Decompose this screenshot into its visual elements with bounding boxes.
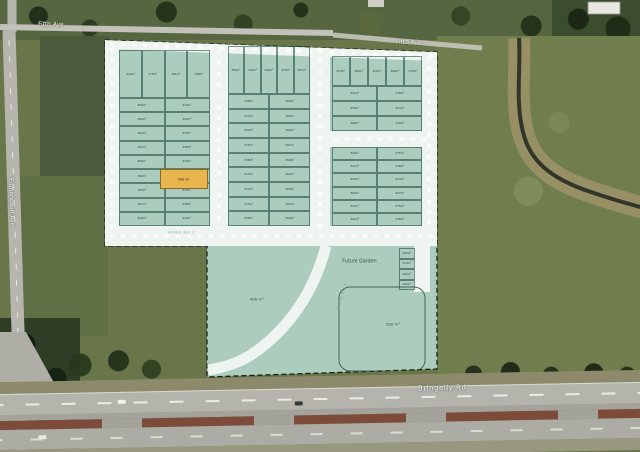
lot-row: 322m²	[399, 280, 415, 291]
lot-area: 360m²	[350, 122, 359, 125]
lot-row: 450m²413m²	[332, 173, 422, 186]
lot-area: 300m²	[137, 132, 146, 135]
lot-area: 450m²	[350, 107, 359, 110]
lot-area: 338m²	[395, 92, 404, 95]
lot-area: 301m²	[350, 92, 359, 95]
lot[interactable]: 450m²	[399, 248, 415, 259]
lot[interactable]: 301m²	[332, 86, 377, 101]
lot[interactable]: 301m²	[165, 50, 188, 98]
lot[interactable]: 322m²	[228, 123, 269, 138]
lot-area: 300m²	[285, 188, 294, 191]
lot[interactable]: 375m²	[142, 50, 165, 98]
lot-area: 375m²	[183, 132, 192, 135]
lot-area: 322m²	[403, 283, 412, 286]
lot[interactable]: 301m²	[269, 197, 310, 212]
lot[interactable]: 338m²	[377, 213, 422, 226]
lot[interactable]: 322m²	[399, 280, 415, 291]
lot-area: 375m²	[183, 189, 192, 192]
lot-row: 450m²413m²	[119, 155, 210, 169]
lot-rows: 450m²413m²360m²322m²	[399, 248, 415, 290]
lot-area: 360m²	[285, 173, 294, 176]
lot-area: 301m²	[285, 202, 294, 205]
lot-row: 450m²	[399, 248, 415, 259]
lot-row: 322m²300m²	[228, 123, 310, 138]
lot-row: 360m²322m²	[332, 116, 422, 131]
lot[interactable]: 450m²	[269, 211, 310, 226]
lot-rows: 300m²375m²301m²338m²450m²413m²360m²322m²…	[332, 147, 422, 226]
lot[interactable]: 360m²	[269, 167, 310, 182]
lot[interactable]: 450m²	[119, 155, 165, 169]
lot-area: 375m²	[149, 72, 158, 75]
lot-area: 413m²	[183, 217, 192, 220]
lot[interactable]: 301m²	[332, 213, 377, 226]
lot-area: 301m²	[137, 146, 146, 149]
lot-area: 375m²	[409, 69, 418, 72]
lot-top-row: 413m²360m²322m²300m²375m²	[332, 56, 422, 86]
lot-area: 413m²	[403, 262, 412, 265]
lot-area: 322m²	[248, 68, 257, 71]
lot[interactable]: 360m²	[332, 116, 377, 131]
lot-area: 413m²	[183, 104, 192, 107]
lot-block-block-d: 450m²413m²360m²322m²	[399, 248, 415, 290]
lot[interactable]: 450m²	[332, 173, 377, 186]
lot-row: 300m²375m²	[332, 200, 422, 213]
lot[interactable]: 450m²	[332, 101, 377, 116]
lot[interactable]: 300m²	[269, 123, 310, 138]
lot-row: 338m²450m²	[228, 94, 310, 109]
lot[interactable]: 360m²	[332, 187, 377, 200]
lot[interactable]: 301m²	[294, 46, 310, 94]
lot-row: 301m²338m²	[119, 198, 210, 212]
lot[interactable]: 450m²	[269, 94, 310, 109]
lot[interactable]: 301m²	[119, 198, 165, 212]
lot[interactable]: 360m²	[119, 112, 165, 126]
lot-area: 322m²	[373, 69, 382, 72]
lot[interactable]: 300m²	[269, 182, 310, 197]
lot-area: 360m²	[350, 192, 359, 195]
lot-row: 301m²338m²	[332, 160, 422, 173]
lot[interactable]: 338m²	[228, 211, 269, 226]
lot-area: 450m²	[285, 217, 294, 220]
lot-area: 301m²	[297, 68, 306, 71]
lot[interactable]: 360m²	[119, 169, 165, 183]
lot-area: 413m²	[244, 114, 253, 117]
lot-row: 413m²360m²	[228, 109, 310, 124]
lot[interactable]: 301m²	[332, 160, 377, 173]
lot-area: 338m²	[395, 218, 404, 221]
lot[interactable]: 413m²	[165, 155, 211, 169]
lot[interactable]: 338m²	[377, 160, 422, 173]
lot-area: 300m²	[391, 69, 400, 72]
lot[interactable]: 338m²	[377, 86, 422, 101]
lot[interactable]: 301m²	[119, 141, 165, 155]
lot-block-block-c2: 300m²375m²301m²338m²450m²413m²360m²322m²…	[332, 147, 422, 226]
lot-area: 338m²	[244, 217, 253, 220]
lot-row: 450m²413m²	[119, 98, 210, 112]
lot[interactable]: 301m²	[269, 138, 310, 153]
lot[interactable]: 300m²	[332, 147, 377, 160]
lot-area: 375m²	[244, 202, 253, 205]
bringelly-rd-label: Bringelly Rd	[418, 383, 467, 392]
lot-top-row: 360m²322m²300m²375m²301m²	[228, 46, 310, 94]
parcel-left-area-label: 400 m²	[250, 297, 264, 302]
lot-row: 301m²338m²	[332, 86, 422, 101]
lot-area: 375m²	[395, 152, 404, 155]
highlighted-lot[interactable]: 300 m²	[160, 169, 208, 189]
lot[interactable]: 413m²	[165, 98, 211, 112]
lot-row: 413m²360m²	[228, 167, 310, 182]
lot[interactable]: 338m²	[228, 153, 269, 168]
lot[interactable]: 375m²	[377, 200, 422, 213]
lot-area: 338m²	[183, 146, 192, 149]
future-garden-label: Future Garden	[342, 259, 376, 265]
lot-area: 322m²	[244, 129, 253, 132]
lot[interactable]: 450m²	[119, 98, 165, 112]
lot-area: 338m²	[244, 158, 253, 161]
lot-area: 300m²	[265, 68, 274, 71]
lot-area: 301m²	[350, 218, 359, 221]
lot-area: 301m²	[137, 203, 146, 206]
lot-area: 413m²	[244, 173, 253, 176]
lot[interactable]: 300m²	[119, 50, 142, 98]
lot-area: 301m²	[350, 165, 359, 168]
lot-top-row: 300m²375m²301m²338m²	[119, 50, 210, 98]
lot-area: 338m²	[395, 165, 404, 168]
lot-area: 322m²	[395, 192, 404, 195]
lot-area: 322m²	[395, 122, 404, 125]
lot-area: 322m²	[183, 118, 192, 121]
lot-area: 360m²	[285, 114, 294, 117]
lot[interactable]: 360m²	[269, 109, 310, 124]
lot-area: 375m²	[395, 205, 404, 208]
lot[interactable]: 375m²	[404, 56, 422, 86]
lot[interactable]: 413m²	[377, 101, 422, 116]
lot-area: 301m²	[171, 72, 180, 75]
lot-area: 413m²	[183, 160, 192, 163]
lot-area: 360m²	[355, 69, 364, 72]
lot[interactable]: 300m²	[119, 126, 165, 140]
lot[interactable]: 413m²	[228, 109, 269, 124]
lot-row: 450m²413m²	[119, 212, 210, 226]
lot[interactable]: 322m²	[228, 182, 269, 197]
lot[interactable]: 300m²	[119, 183, 165, 197]
lot-rows: 338m²450m²413m²360m²322m²300m²375m²301m²…	[228, 94, 310, 226]
lot[interactable]: 300m²	[261, 46, 277, 94]
lot[interactable]: 322m²	[244, 46, 260, 94]
lots-layer: 300m²375m²301m²338m²450m²413m²360m²322m²…	[0, 0, 640, 452]
lot[interactable]: 375m²	[165, 126, 211, 140]
lot-row: 375m²301m²	[228, 138, 310, 153]
lot[interactable]: 338m²	[165, 198, 211, 212]
lot[interactable]: 375m²	[228, 197, 269, 212]
lot-area: 300m²	[350, 152, 359, 155]
lot-area: 322m²	[244, 188, 253, 191]
lot-area: 450m²	[403, 252, 412, 255]
lot-block-block-c1: 413m²360m²322m²300m²375m²301m²338m²450m²…	[332, 56, 422, 131]
lot-row: 300m²375m²	[119, 126, 210, 140]
lot[interactable]: 413m²	[228, 167, 269, 182]
lot-block-block-a: 300m²375m²301m²338m²450m²413m²360m²322m²…	[119, 50, 210, 226]
lot[interactable]: 375m²	[228, 138, 269, 153]
lot-row: 360m²	[399, 269, 415, 280]
lot[interactable]: 375m²	[377, 147, 422, 160]
lot-row: 450m²413m²	[332, 101, 422, 116]
lot-row: 301m²338m²	[332, 213, 422, 226]
lot[interactable]: 300m²	[332, 200, 377, 213]
lot-row: 375m²301m²	[228, 197, 310, 212]
lot-area: 300m²	[126, 72, 135, 75]
lot-area: 413m²	[337, 69, 346, 72]
parcel-right-area-label: 500 m²	[386, 322, 400, 327]
lot-area: 450m²	[285, 100, 294, 103]
lot-area: 375m²	[244, 144, 253, 147]
lot[interactable]: 413m²	[399, 259, 415, 270]
lot[interactable]: 413m²	[165, 212, 211, 226]
lot-area: 338m²	[194, 72, 203, 75]
lot-area: 338m²	[183, 203, 192, 206]
lot[interactable]: 322m²	[368, 56, 386, 86]
lot-area: 360m²	[137, 175, 146, 178]
lot-area: 450m²	[137, 104, 146, 107]
lot-area: 413m²	[395, 178, 404, 181]
lot-area: 450m²	[137, 217, 146, 220]
lot-rows: 450m²413m²360m²322m²300m²375m²301m²338m²…	[119, 98, 210, 226]
lot-row: 413m²	[399, 259, 415, 270]
lot[interactable]: 360m²	[399, 269, 415, 280]
lot-row: 301m²338m²	[119, 141, 210, 155]
lot-area: 450m²	[137, 160, 146, 163]
lot[interactable]: 450m²	[269, 153, 310, 168]
highlighted-lot-area: 300 m²	[178, 177, 190, 181]
lot[interactable]: 413m²	[377, 173, 422, 186]
lot[interactable]: 360m²	[350, 56, 368, 86]
lot-row: 338m²450m²	[228, 211, 310, 226]
lot-area: 450m²	[350, 178, 359, 181]
lot-row: 300m²375m²	[332, 147, 422, 160]
lot-area: 301m²	[285, 144, 294, 147]
fifth-ave-west-label: Fifth Ave	[38, 21, 64, 28]
lot[interactable]: 322m²	[377, 187, 422, 200]
lot-rows: 301m²338m²450m²413m²360m²322m²	[332, 86, 422, 131]
lot-area: 360m²	[232, 68, 241, 71]
lot-area: 300m²	[285, 129, 294, 132]
lot-area: 300m²	[137, 189, 146, 192]
lot-area: 375m²	[281, 68, 290, 71]
lot-area: 413m²	[395, 107, 404, 110]
lot[interactable]: 322m²	[377, 116, 422, 131]
lot-area: 360m²	[403, 273, 412, 276]
lot[interactable]: 300m²	[386, 56, 404, 86]
lot-row: 338m²450m²	[228, 153, 310, 168]
lot[interactable]: 338m²	[228, 94, 269, 109]
lot-area: 338m²	[244, 100, 253, 103]
lot-row: 360m²322m²	[119, 112, 210, 126]
lot-area: 450m²	[285, 158, 294, 161]
lot[interactable]: 322m²	[165, 112, 211, 126]
lot-area: 360m²	[137, 118, 146, 121]
lot-block-block-b: 360m²322m²300m²375m²301m²338m²450m²413m²…	[228, 46, 310, 226]
aerial-subdivision-map: 300m²375m²301m²338m²450m²413m²360m²322m²…	[0, 0, 640, 452]
lot[interactable]: 375m²	[277, 46, 293, 94]
lot[interactable]: 450m²	[119, 212, 165, 226]
lot[interactable]: 338m²	[187, 50, 210, 98]
lot[interactable]: 413m²	[332, 56, 350, 86]
road-no-2-label: ROAD NO 2	[168, 230, 195, 234]
lot[interactable]: 338m²	[165, 141, 211, 155]
lot[interactable]: 360m²	[228, 46, 244, 94]
lot-row: 360m²322m²	[332, 187, 422, 200]
lot-row: 322m²300m²	[228, 182, 310, 197]
lot-area: 300m²	[350, 205, 359, 208]
